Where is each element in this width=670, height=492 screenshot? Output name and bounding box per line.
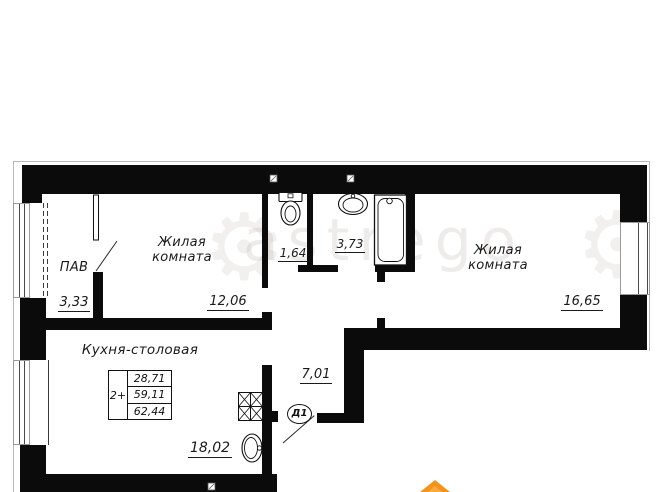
area-value: 16,65	[561, 294, 602, 311]
room-area-living1: 12,06	[200, 294, 256, 311]
stamp-rows: 28,71 59,11 62,44	[128, 371, 171, 419]
area-value: 3,73	[335, 237, 366, 253]
pav-partition	[94, 195, 99, 240]
room-label-line: комната	[136, 251, 228, 266]
apartment-stamp-table: 2+ 28,71 59,11 62,44	[108, 370, 172, 420]
stamp-rooms-count: 2+	[109, 371, 128, 419]
kitchen-sink-icon	[242, 434, 262, 462]
room-label-living1: Жилая комната	[136, 236, 228, 265]
room-area-wc: 1,64	[272, 246, 314, 262]
wardrobe-dashed-line	[44, 203, 48, 298]
area-value: 1,64	[278, 246, 309, 262]
room-label-kitchen: Кухня-столовая	[78, 343, 202, 358]
room-label-line: комната	[452, 259, 544, 274]
area-value: 7,01	[300, 367, 333, 384]
toilet-icon	[279, 193, 302, 226]
stamp-total-with-balcony: 62,44	[128, 404, 171, 419]
door-tag-d1: Д1	[287, 404, 312, 424]
area-value: 3,33	[58, 295, 91, 312]
stove-icon	[239, 393, 263, 421]
floor-plan-page: { "plan": { "watermark": "astrego", "roo…	[0, 0, 670, 492]
room-label-pav: ПАВ	[52, 261, 96, 276]
room-label-living2: Жилая комната	[452, 244, 544, 273]
bathtub-icon	[375, 195, 407, 265]
room-area-living2: 16,65	[556, 294, 608, 311]
pav-door-swing-line	[96, 241, 117, 271]
room-area-kitchen: 18,02	[184, 440, 236, 458]
sink-icon	[339, 194, 368, 215]
area-value: 12,06	[207, 294, 248, 311]
stamp-living-area: 28,71	[128, 371, 171, 386]
room-area-hall: 7,01	[294, 367, 338, 384]
room-label-line: Жилая	[452, 244, 544, 259]
room-label-line: Жилая	[136, 236, 228, 251]
room-area-bath: 3,73	[328, 237, 372, 253]
area-value: 18,02	[188, 440, 232, 458]
room-area-pav: 3,33	[48, 295, 100, 312]
stamp-total-area: 59,11	[128, 386, 171, 403]
